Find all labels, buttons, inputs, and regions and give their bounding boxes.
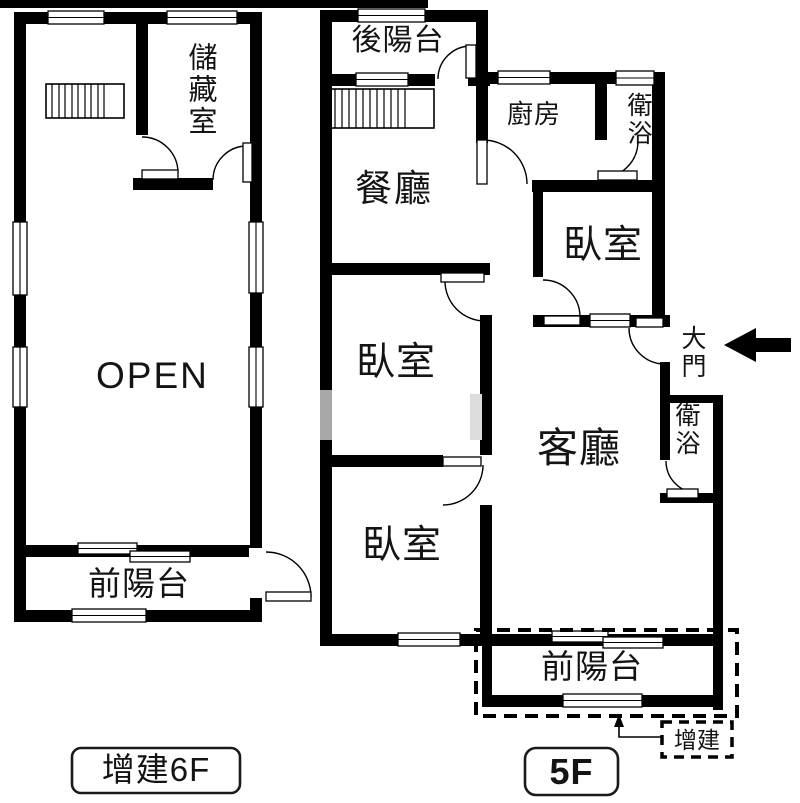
door-arc bbox=[543, 280, 580, 325]
window bbox=[13, 222, 27, 295]
floor6-walls bbox=[14, 12, 262, 622]
window bbox=[13, 347, 27, 407]
window bbox=[552, 631, 608, 642]
window bbox=[616, 71, 654, 85]
addition-note-label: 增建 bbox=[662, 728, 732, 752]
floor-plan-image: 儲藏室 OPEN 前陽台 增建6F 後陽台 廚房 衛浴 餐廳 臥室 大門 衛浴 … bbox=[0, 0, 800, 803]
window bbox=[398, 633, 460, 646]
room-label-bath-right: 衛浴 bbox=[671, 402, 699, 458]
door-arc bbox=[142, 137, 178, 179]
window bbox=[249, 347, 263, 407]
room-label-bedroom-top: 臥室 bbox=[560, 226, 646, 267]
room-label-dining: 餐廳 bbox=[352, 170, 436, 209]
door-opening bbox=[435, 73, 468, 87]
window bbox=[72, 609, 146, 622]
door-arc bbox=[213, 143, 252, 182]
window bbox=[603, 637, 663, 648]
door-arc bbox=[443, 457, 483, 505]
window bbox=[249, 222, 263, 293]
window bbox=[358, 9, 425, 22]
floor5-tag: 5F bbox=[525, 753, 618, 791]
floor6-tag: 增建6F bbox=[72, 753, 240, 788]
entrance-direction-arrow-icon bbox=[724, 328, 791, 362]
door-opening bbox=[249, 548, 263, 598]
room-label-back-balcony: 後陽台 bbox=[346, 25, 450, 57]
room-label-open: OPEN bbox=[96, 357, 208, 396]
window bbox=[167, 11, 237, 24]
stairs-icon bbox=[46, 84, 124, 118]
door-arc bbox=[666, 461, 698, 498]
room-label-front-balcony-6f: 前陽台 bbox=[88, 567, 190, 602]
window bbox=[130, 551, 190, 562]
room-label-kitchen: 廚房 bbox=[504, 101, 564, 128]
room-label-storage: 儲藏室 bbox=[182, 42, 215, 138]
room-label-living: 客廳 bbox=[533, 427, 625, 470]
watermark-smudge bbox=[470, 394, 482, 440]
room-label-bath-top: 衛浴 bbox=[623, 92, 651, 148]
stairs-icon bbox=[329, 89, 434, 128]
door-arc bbox=[477, 140, 527, 184]
scan-artifact-bar bbox=[0, 0, 428, 8]
room-label-front-balcony-5f: 前陽台 bbox=[538, 650, 646, 685]
watermark-smudge bbox=[320, 390, 332, 440]
window bbox=[356, 73, 408, 86]
door-arc bbox=[441, 273, 485, 321]
window bbox=[48, 11, 104, 24]
window bbox=[590, 314, 630, 327]
room-label-bedroom-bottom: 臥室 bbox=[359, 526, 445, 567]
window bbox=[498, 71, 550, 84]
window bbox=[563, 694, 642, 707]
room-label-bedroom-mid: 臥室 bbox=[353, 343, 439, 384]
door-arc bbox=[266, 552, 311, 601]
room-label-main-door: 大門 bbox=[677, 325, 705, 381]
window bbox=[78, 543, 137, 554]
